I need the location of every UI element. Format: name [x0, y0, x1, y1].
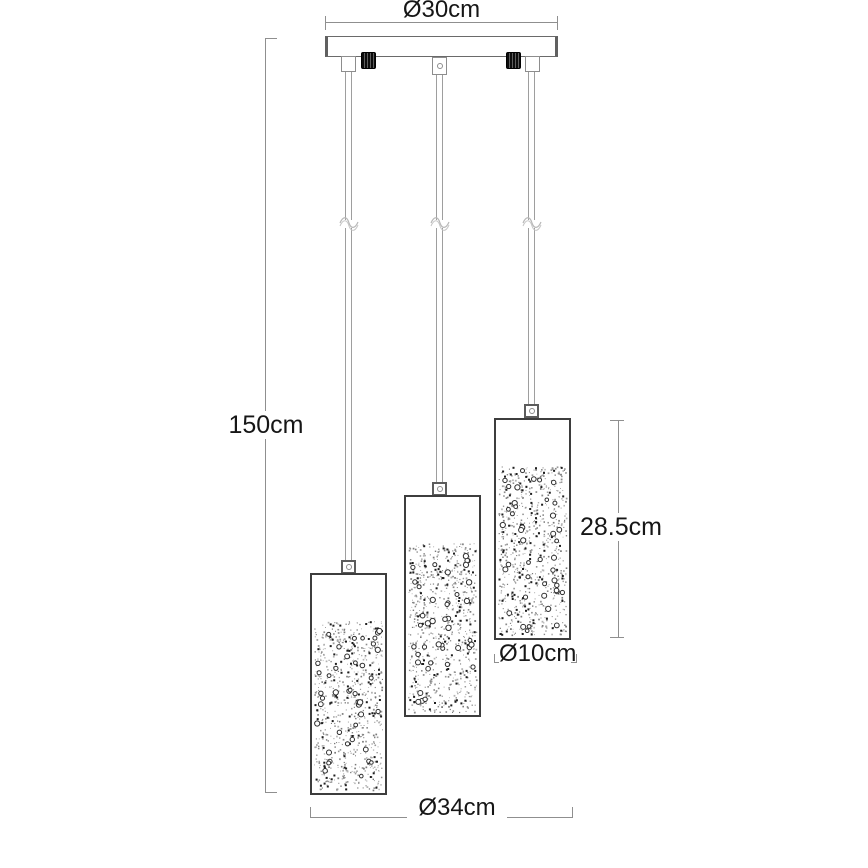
dim-fixture-width-label: Ø34cm: [407, 797, 507, 819]
dim-fixture-width-tick-left: [310, 807, 311, 818]
shade-middle: [404, 495, 481, 717]
dim-shade-height-tick-top: [610, 420, 624, 421]
shade-connector-right: [524, 404, 539, 418]
cord-connector-left-top: [341, 56, 356, 72]
dim-shade-diameter-tick-right: [576, 654, 577, 663]
shade-glass-fill: [497, 465, 568, 637]
pendant-lamp-dimension-diagram: Ø30cm: [0, 0, 868, 868]
shade-connector-center: [432, 482, 447, 496]
dim-total-height-tick-top: [265, 38, 277, 39]
strain-relief-nut-right-icon: [506, 52, 521, 69]
dim-shade-height-tick-bottom: [610, 637, 624, 638]
dim-canopy-diameter-tick-left: [325, 16, 326, 30]
dim-shade-diameter-label: Ø10cm: [499, 643, 571, 664]
shade-glass-fill: [407, 542, 478, 714]
cord-break-icon: [429, 216, 451, 232]
suspension-cord-left: [345, 72, 352, 560]
dim-shade-height-label: 28.5cm: [577, 513, 665, 541]
cord-break-icon: [338, 216, 360, 232]
shade-connector-left: [341, 560, 356, 574]
shade-right: [494, 418, 571, 640]
dim-canopy-diameter-label: Ø30cm: [325, 0, 558, 22]
dim-shade-diameter-tick-left: [494, 654, 495, 663]
suspension-cord-right: [528, 72, 535, 404]
shade-left: [310, 573, 387, 795]
dim-total-height-label: 150cm: [214, 411, 318, 439]
shade-glass-window: [406, 497, 479, 542]
shade-glass-window: [312, 575, 385, 620]
dim-total-height-tick-bottom: [265, 792, 277, 793]
cord-connector-right-top: [525, 56, 540, 72]
dim-canopy-diameter-line: [325, 22, 558, 23]
strain-relief-nut-left-icon: [361, 52, 376, 69]
cord-break-icon: [521, 216, 543, 232]
cord-connector-center-top: [432, 57, 447, 75]
dim-canopy-diameter-tick-right: [557, 16, 558, 30]
shade-glass-window: [496, 420, 569, 465]
shade-glass-fill: [313, 620, 384, 792]
ceiling-canopy-bar: [325, 36, 558, 57]
suspension-cord-center: [436, 75, 443, 482]
dim-fixture-width-tick-right: [572, 807, 573, 818]
